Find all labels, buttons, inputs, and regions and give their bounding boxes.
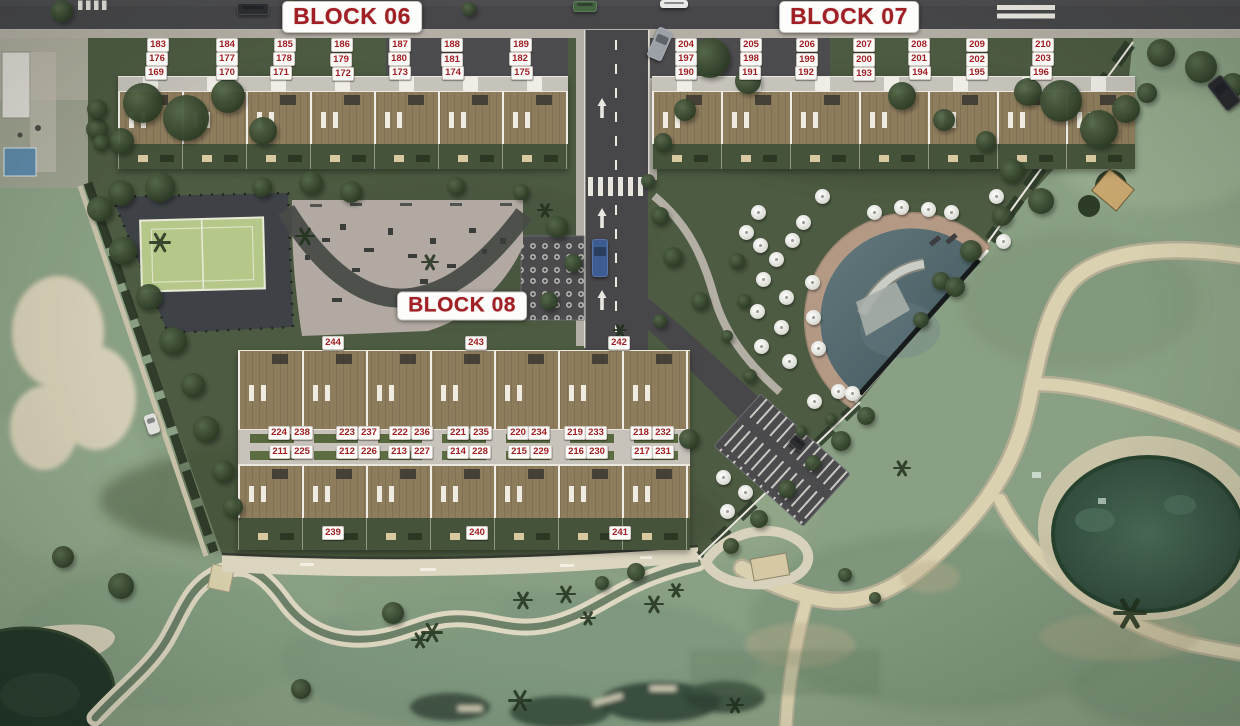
unit-label-222[interactable]: 222 bbox=[389, 426, 411, 440]
unit-label-195[interactable]: 195 bbox=[966, 66, 988, 80]
unit-label-181[interactable]: 181 bbox=[441, 53, 463, 67]
unit-label-186[interactable]: 186 bbox=[331, 38, 353, 52]
unit-label-175[interactable]: 175 bbox=[511, 66, 533, 80]
unit-label-235[interactable]: 235 bbox=[470, 426, 492, 440]
unit-label-213[interactable]: 213 bbox=[388, 445, 410, 459]
unit-label-200[interactable]: 200 bbox=[853, 53, 875, 67]
unit-label-188[interactable]: 188 bbox=[441, 38, 463, 52]
unit-label-221[interactable]: 221 bbox=[447, 426, 469, 440]
unit-label-176[interactable]: 176 bbox=[146, 52, 168, 66]
unit-label-227[interactable]: 227 bbox=[411, 445, 433, 459]
unit-label-206[interactable]: 206 bbox=[796, 38, 818, 52]
unit-label-179[interactable]: 179 bbox=[330, 53, 352, 67]
unit-label-217[interactable]: 217 bbox=[631, 445, 653, 459]
unit-label-201[interactable]: 201 bbox=[908, 52, 930, 66]
block-06-badge[interactable]: BLOCK 06 bbox=[282, 1, 422, 33]
unit-label-194[interactable]: 194 bbox=[909, 66, 931, 80]
unit-label-226[interactable]: 226 bbox=[358, 445, 380, 459]
unit-label-228[interactable]: 228 bbox=[469, 445, 491, 459]
unit-label-212[interactable]: 212 bbox=[336, 445, 358, 459]
unit-label-223[interactable]: 223 bbox=[336, 426, 358, 440]
unit-label-224[interactable]: 224 bbox=[268, 426, 290, 440]
unit-label-231[interactable]: 231 bbox=[652, 445, 674, 459]
unit-label-172[interactable]: 172 bbox=[332, 67, 354, 81]
unit-label-196[interactable]: 196 bbox=[1030, 66, 1052, 80]
unit-label-233[interactable]: 233 bbox=[585, 426, 607, 440]
unit-label-205[interactable]: 205 bbox=[740, 38, 762, 52]
unit-label-171[interactable]: 171 bbox=[270, 66, 292, 80]
unit-label-243[interactable]: 243 bbox=[465, 336, 487, 350]
unit-label-178[interactable]: 178 bbox=[273, 52, 295, 66]
unit-label-232[interactable]: 232 bbox=[652, 426, 674, 440]
unit-label-209[interactable]: 209 bbox=[966, 38, 988, 52]
unit-label-193[interactable]: 193 bbox=[853, 67, 875, 81]
unit-label-208[interactable]: 208 bbox=[908, 38, 930, 52]
unit-label-207[interactable]: 207 bbox=[853, 38, 875, 52]
unit-label-216[interactable]: 216 bbox=[565, 445, 587, 459]
unit-label-169[interactable]: 169 bbox=[145, 66, 167, 80]
unit-label-239[interactable]: 239 bbox=[322, 526, 344, 540]
unit-label-203[interactable]: 203 bbox=[1032, 52, 1054, 66]
site-plan-map: 1831841851861871881891761771781791801811… bbox=[0, 0, 1240, 726]
unit-label-173[interactable]: 173 bbox=[389, 66, 411, 80]
unit-label-236[interactable]: 236 bbox=[411, 426, 433, 440]
unit-label-202[interactable]: 202 bbox=[966, 53, 988, 67]
unit-label-225[interactable]: 225 bbox=[291, 445, 313, 459]
unit-label-242[interactable]: 242 bbox=[608, 336, 630, 350]
unit-label-190[interactable]: 190 bbox=[675, 66, 697, 80]
unit-label-199[interactable]: 199 bbox=[796, 53, 818, 67]
unit-label-185[interactable]: 185 bbox=[274, 38, 296, 52]
block-08-badge[interactable]: BLOCK 08 bbox=[397, 292, 527, 321]
unit-label-191[interactable]: 191 bbox=[739, 66, 761, 80]
unit-label-230[interactable]: 230 bbox=[586, 445, 608, 459]
unit-label-177[interactable]: 177 bbox=[216, 52, 238, 66]
unit-label-229[interactable]: 229 bbox=[530, 445, 552, 459]
unit-label-237[interactable]: 237 bbox=[358, 426, 380, 440]
unit-label-218[interactable]: 218 bbox=[630, 426, 652, 440]
unit-label-238[interactable]: 238 bbox=[291, 426, 313, 440]
unit-label-220[interactable]: 220 bbox=[507, 426, 529, 440]
unit-label-211[interactable]: 211 bbox=[269, 445, 290, 459]
unit-label-189[interactable]: 189 bbox=[510, 38, 532, 52]
unit-label-197[interactable]: 197 bbox=[675, 52, 697, 66]
unit-label-234[interactable]: 234 bbox=[528, 426, 550, 440]
unit-label-183[interactable]: 183 bbox=[147, 38, 169, 52]
unit-label-184[interactable]: 184 bbox=[216, 38, 238, 52]
unit-label-198[interactable]: 198 bbox=[740, 52, 762, 66]
unit-label-204[interactable]: 204 bbox=[675, 38, 697, 52]
unit-label-174[interactable]: 174 bbox=[442, 66, 464, 80]
unit-label-170[interactable]: 170 bbox=[216, 66, 238, 80]
unit-label-180[interactable]: 180 bbox=[388, 52, 410, 66]
unit-labels-layer: 1831841851861871881891761771781791801811… bbox=[0, 0, 1240, 726]
unit-label-215[interactable]: 215 bbox=[508, 445, 530, 459]
unit-label-244[interactable]: 244 bbox=[322, 336, 344, 350]
block-07-badge[interactable]: BLOCK 07 bbox=[779, 1, 919, 33]
unit-label-182[interactable]: 182 bbox=[509, 52, 531, 66]
unit-label-210[interactable]: 210 bbox=[1032, 38, 1054, 52]
unit-label-187[interactable]: 187 bbox=[389, 38, 411, 52]
unit-label-214[interactable]: 214 bbox=[447, 445, 469, 459]
unit-label-240[interactable]: 240 bbox=[466, 526, 488, 540]
unit-label-219[interactable]: 219 bbox=[564, 426, 586, 440]
unit-label-192[interactable]: 192 bbox=[795, 66, 817, 80]
unit-label-241[interactable]: 241 bbox=[609, 526, 631, 540]
